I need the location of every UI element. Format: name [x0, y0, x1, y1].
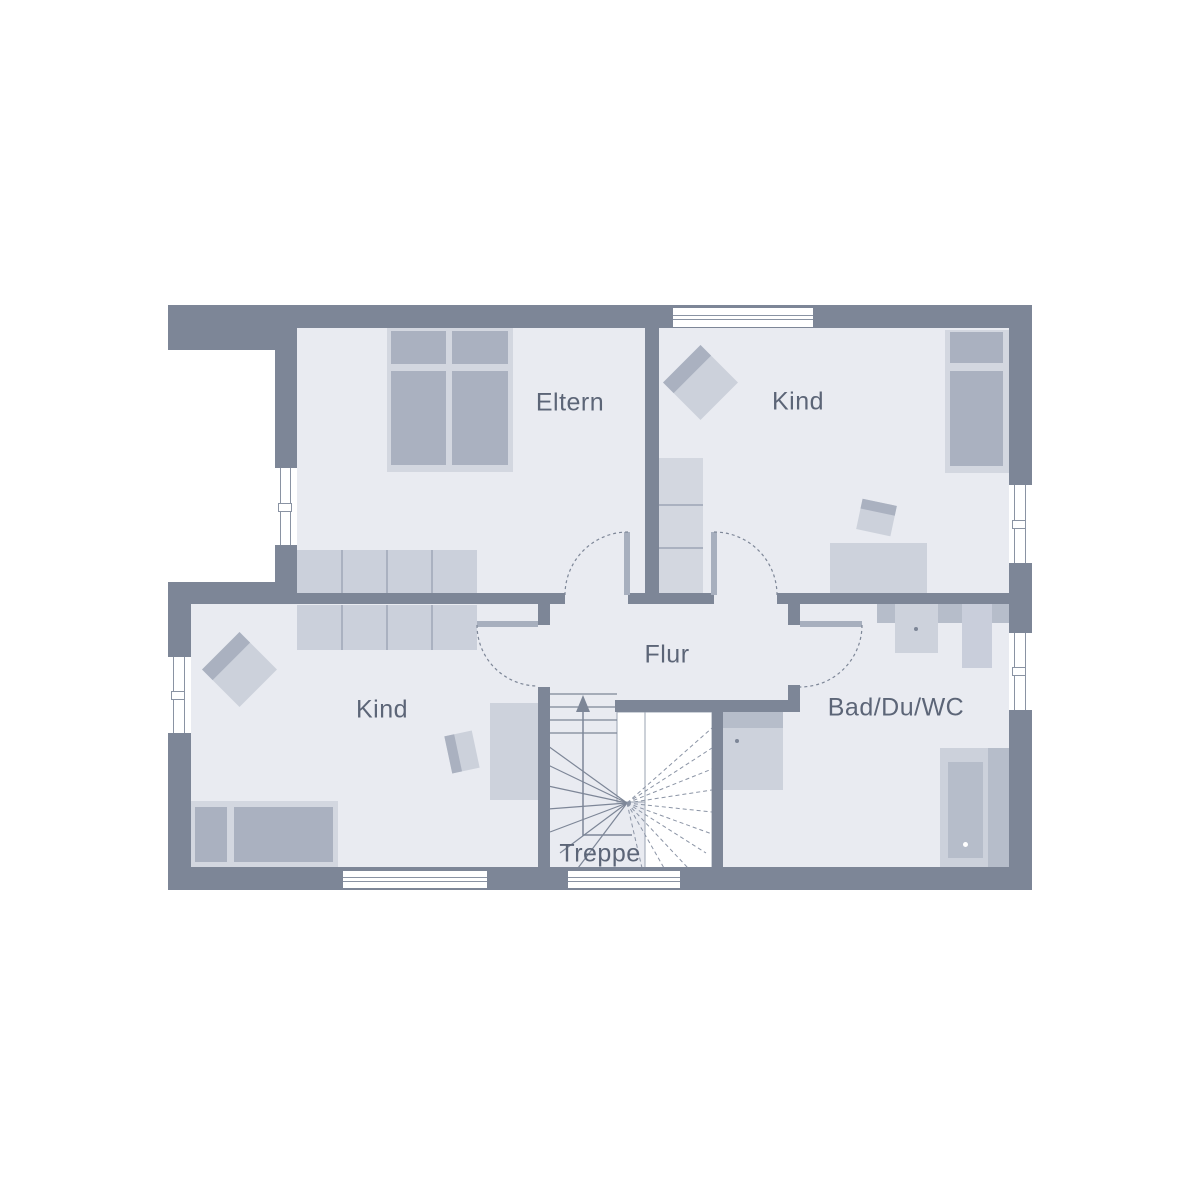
- wc: [723, 728, 783, 790]
- room-label-kind-top: Kind: [772, 388, 824, 417]
- wall-outer-topleft-tab: [168, 305, 280, 350]
- washbasin: [895, 604, 938, 653]
- room-label-flur: Flur: [644, 641, 689, 670]
- room-label-eltern: Eltern: [536, 389, 604, 418]
- wall-kind-bad: [777, 593, 1009, 604]
- wardrobe-eltern: [297, 550, 477, 593]
- window-kind-bottom-south: [343, 871, 487, 888]
- shelf-kind-top: [659, 458, 703, 593]
- bed-pillow-right: [452, 331, 508, 364]
- bed-pillow-kind-top: [950, 332, 1003, 363]
- bed-mattress-kind-top: [950, 371, 1003, 466]
- floor-plan: Eltern Kind Kind Flur Bad/Du/WC Treppe: [0, 0, 1200, 1200]
- bathtub: [948, 762, 983, 858]
- window-kind-bottom-left: [168, 657, 191, 733]
- bed-mattress-left: [391, 371, 446, 465]
- door-swing-kind-bottom: [477, 625, 538, 686]
- wall-treppe-bad: [712, 700, 723, 868]
- shower-column: [962, 604, 992, 668]
- window-eltern-left: [275, 468, 297, 545]
- wall-outer-left-lower: [168, 582, 191, 890]
- door-swing-eltern: [565, 532, 628, 595]
- wall-bad-door-stub-top: [788, 604, 800, 625]
- desk-kind-bottom: [490, 703, 538, 800]
- window-treppe-south: [568, 871, 680, 888]
- wall-flur-bad-south: [615, 700, 800, 712]
- floor-plan-canvas: Eltern Kind Kind Flur Bad/Du/WC Treppe: [0, 0, 1200, 1200]
- wall-outer-top: [168, 305, 1032, 328]
- bed-mattress-kind-bottom: [234, 807, 333, 862]
- wall-flur-center: [628, 593, 714, 604]
- window-kind-top-right: [1009, 485, 1032, 563]
- wall-outer-right: [1009, 305, 1032, 890]
- wall-kind-door-stub: [538, 604, 550, 625]
- bed-pillow-left: [391, 331, 446, 364]
- door-swing-kind-top: [714, 532, 777, 595]
- wall-flur-west: [191, 593, 565, 604]
- window-bad-right: [1009, 633, 1032, 710]
- desk-kind-top: [830, 543, 927, 593]
- room-label-treppe: Treppe: [559, 840, 640, 869]
- room-label-bad: Bad/Du/WC: [828, 694, 964, 723]
- door-swing-bad: [800, 625, 862, 687]
- bathtub-side-shelf: [988, 748, 1009, 867]
- wc-cistern: [723, 712, 783, 728]
- stair-upper-flight-area: [645, 712, 712, 868]
- stair-well-void: [617, 712, 645, 802]
- wall-eltern-kind: [645, 328, 659, 604]
- window-kind-top: [673, 308, 813, 327]
- wardrobe-kind-bottom: [297, 605, 477, 650]
- bed-mattress-right: [452, 371, 508, 465]
- room-label-kind-bottom: Kind: [356, 696, 408, 725]
- wall-kind-treppe: [538, 687, 550, 868]
- bed-pillow-kind-bottom: [195, 807, 227, 862]
